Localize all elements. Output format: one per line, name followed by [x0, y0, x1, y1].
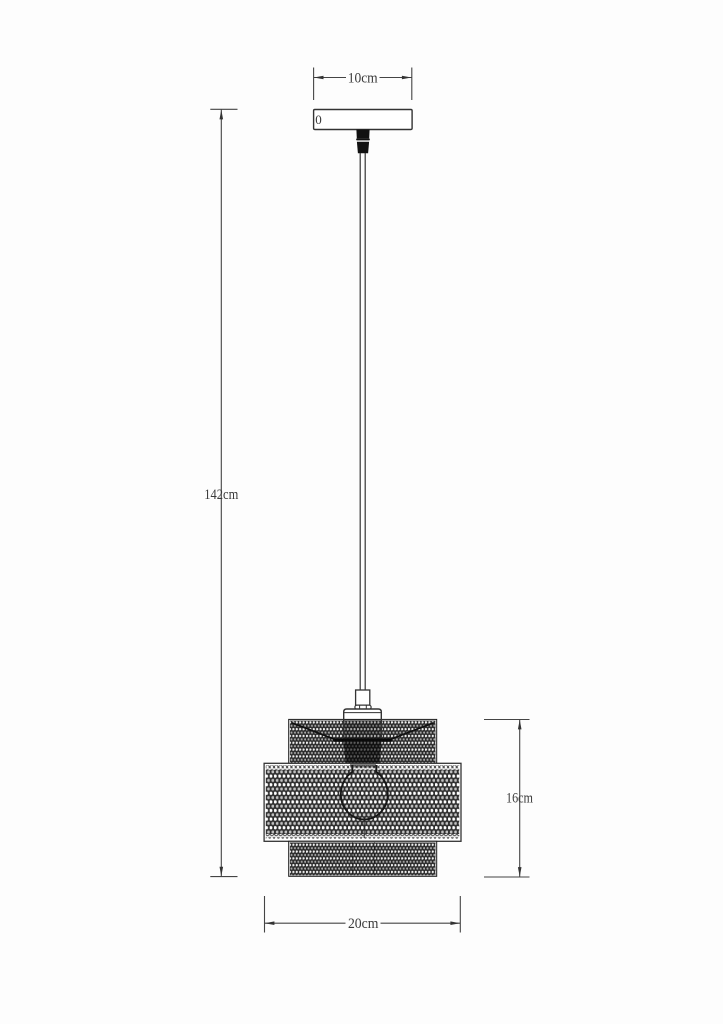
svg-text:20cm: 20cm: [348, 916, 379, 932]
svg-text:142cm: 142cm: [204, 487, 238, 503]
svg-text:0: 0: [315, 112, 322, 127]
svg-text:16cm: 16cm: [506, 791, 533, 807]
svg-text:10cm: 10cm: [348, 71, 378, 87]
